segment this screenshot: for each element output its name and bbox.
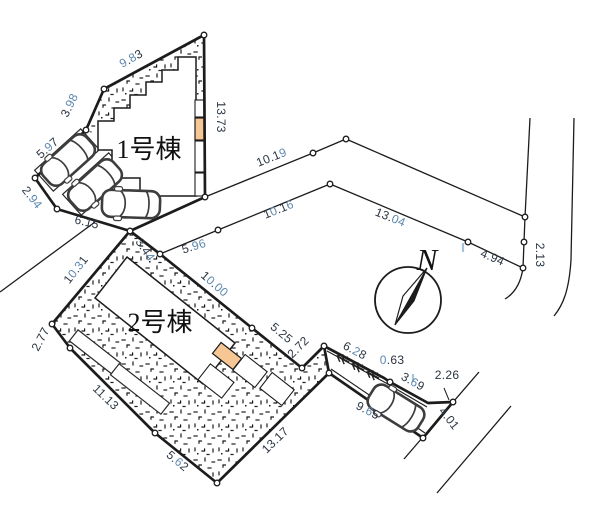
dim-label-10.16: 10.16 — [261, 197, 296, 222]
site-plan-drawing: 1号棟 2号棟 — [0, 0, 600, 523]
vertex-node — [343, 136, 349, 142]
vertex-node — [101, 86, 107, 92]
vertex-node — [67, 345, 73, 351]
vertex-node — [299, 365, 305, 371]
dim-label-9.83: 9.83 — [117, 46, 145, 70]
dim-label-2.26: 2.26 — [435, 368, 460, 382]
north-label: N — [416, 242, 440, 277]
road-edge-north — [205, 139, 525, 217]
vertex-node — [522, 214, 528, 220]
vertex-node — [157, 251, 163, 257]
road-east-line-1 — [505, 118, 530, 299]
dim-label-2.77: 2.77 — [29, 325, 53, 353]
building-2-label: 2号棟 — [127, 308, 192, 337]
dim-label-13.73: 13.73 — [214, 101, 228, 133]
car-icon — [101, 186, 160, 222]
vertex-node — [215, 227, 221, 233]
vertex-node — [249, 325, 255, 331]
vertex-node — [465, 239, 471, 245]
vertex-node — [520, 265, 526, 271]
vertex-node — [321, 343, 327, 349]
dim-label-0.63: 0.63 — [380, 353, 405, 367]
vertex-node — [327, 181, 333, 187]
vertex-node — [326, 370, 332, 376]
dim-label-5.96: 5.96 — [180, 236, 208, 257]
road-east-line-2 — [554, 118, 574, 316]
vertex-node — [32, 175, 38, 181]
road-edge-south — [160, 184, 523, 268]
vertex-node — [214, 480, 220, 486]
dim-leader-2-26 — [444, 388, 449, 400]
vertex-node — [420, 435, 426, 441]
vertex-node — [83, 127, 89, 133]
dim-label-4.94: 4.94 — [479, 246, 507, 269]
site-plan-page: 1号棟 2号棟 — [0, 0, 600, 523]
vertex-node — [202, 194, 208, 200]
building-1-label: 1号棟 — [116, 135, 181, 164]
dim-label-13.04: 13.04 — [373, 205, 408, 230]
vertex-node — [152, 430, 158, 436]
vertex-node — [387, 379, 393, 385]
vertex-node — [521, 239, 527, 245]
vertex-node — [310, 150, 316, 156]
dim-label-2.13: 2.13 — [533, 243, 547, 268]
vertex-node — [127, 228, 133, 234]
dim-label-10.19: 10.19 — [254, 145, 289, 170]
vertex-node — [201, 32, 207, 38]
compass-icon: N — [375, 242, 441, 333]
dim-label-3.98: 3.98 — [58, 91, 81, 119]
vertex-node — [54, 206, 60, 212]
vertex-node — [49, 321, 55, 327]
vertex-node — [450, 399, 456, 405]
